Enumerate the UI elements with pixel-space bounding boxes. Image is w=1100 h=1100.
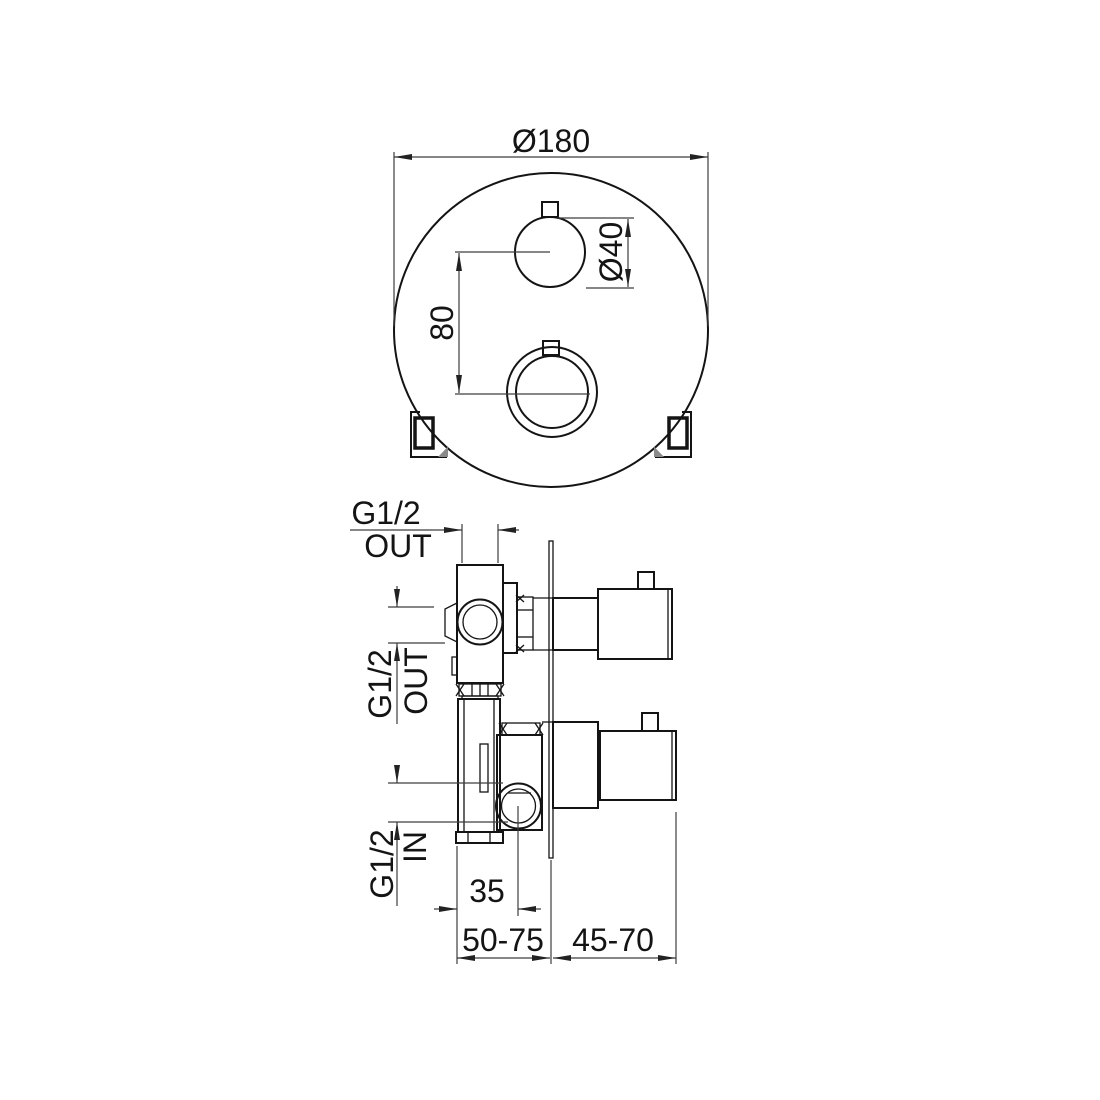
top-outlet-thread-label: G1/2 — [351, 495, 420, 531]
inlet-offset-label: 35 — [469, 873, 505, 909]
rough-in-depth-label: 50-75 — [462, 922, 544, 958]
inlet-flow-label: IN — [397, 831, 433, 863]
inlet-thread-label: G1/2 — [364, 829, 400, 898]
knob-diameter-label: Ø40 — [593, 222, 629, 282]
plate-diameter-label: Ø180 — [512, 123, 590, 159]
technical-drawing-page: Ø180 80 Ø40 — [0, 0, 1100, 1100]
drawing-background — [0, 0, 1100, 1100]
handle-projection-label: 45-70 — [572, 922, 654, 958]
knob-center-distance-label: 80 — [424, 305, 460, 341]
top-outlet-flow-label: OUT — [364, 528, 432, 564]
side-outlet-thread-label: G1/2 — [362, 649, 398, 718]
shower-valve-drawing: Ø180 80 Ø40 — [0, 0, 1100, 1100]
side-outlet-flow-label: OUT — [398, 647, 434, 715]
